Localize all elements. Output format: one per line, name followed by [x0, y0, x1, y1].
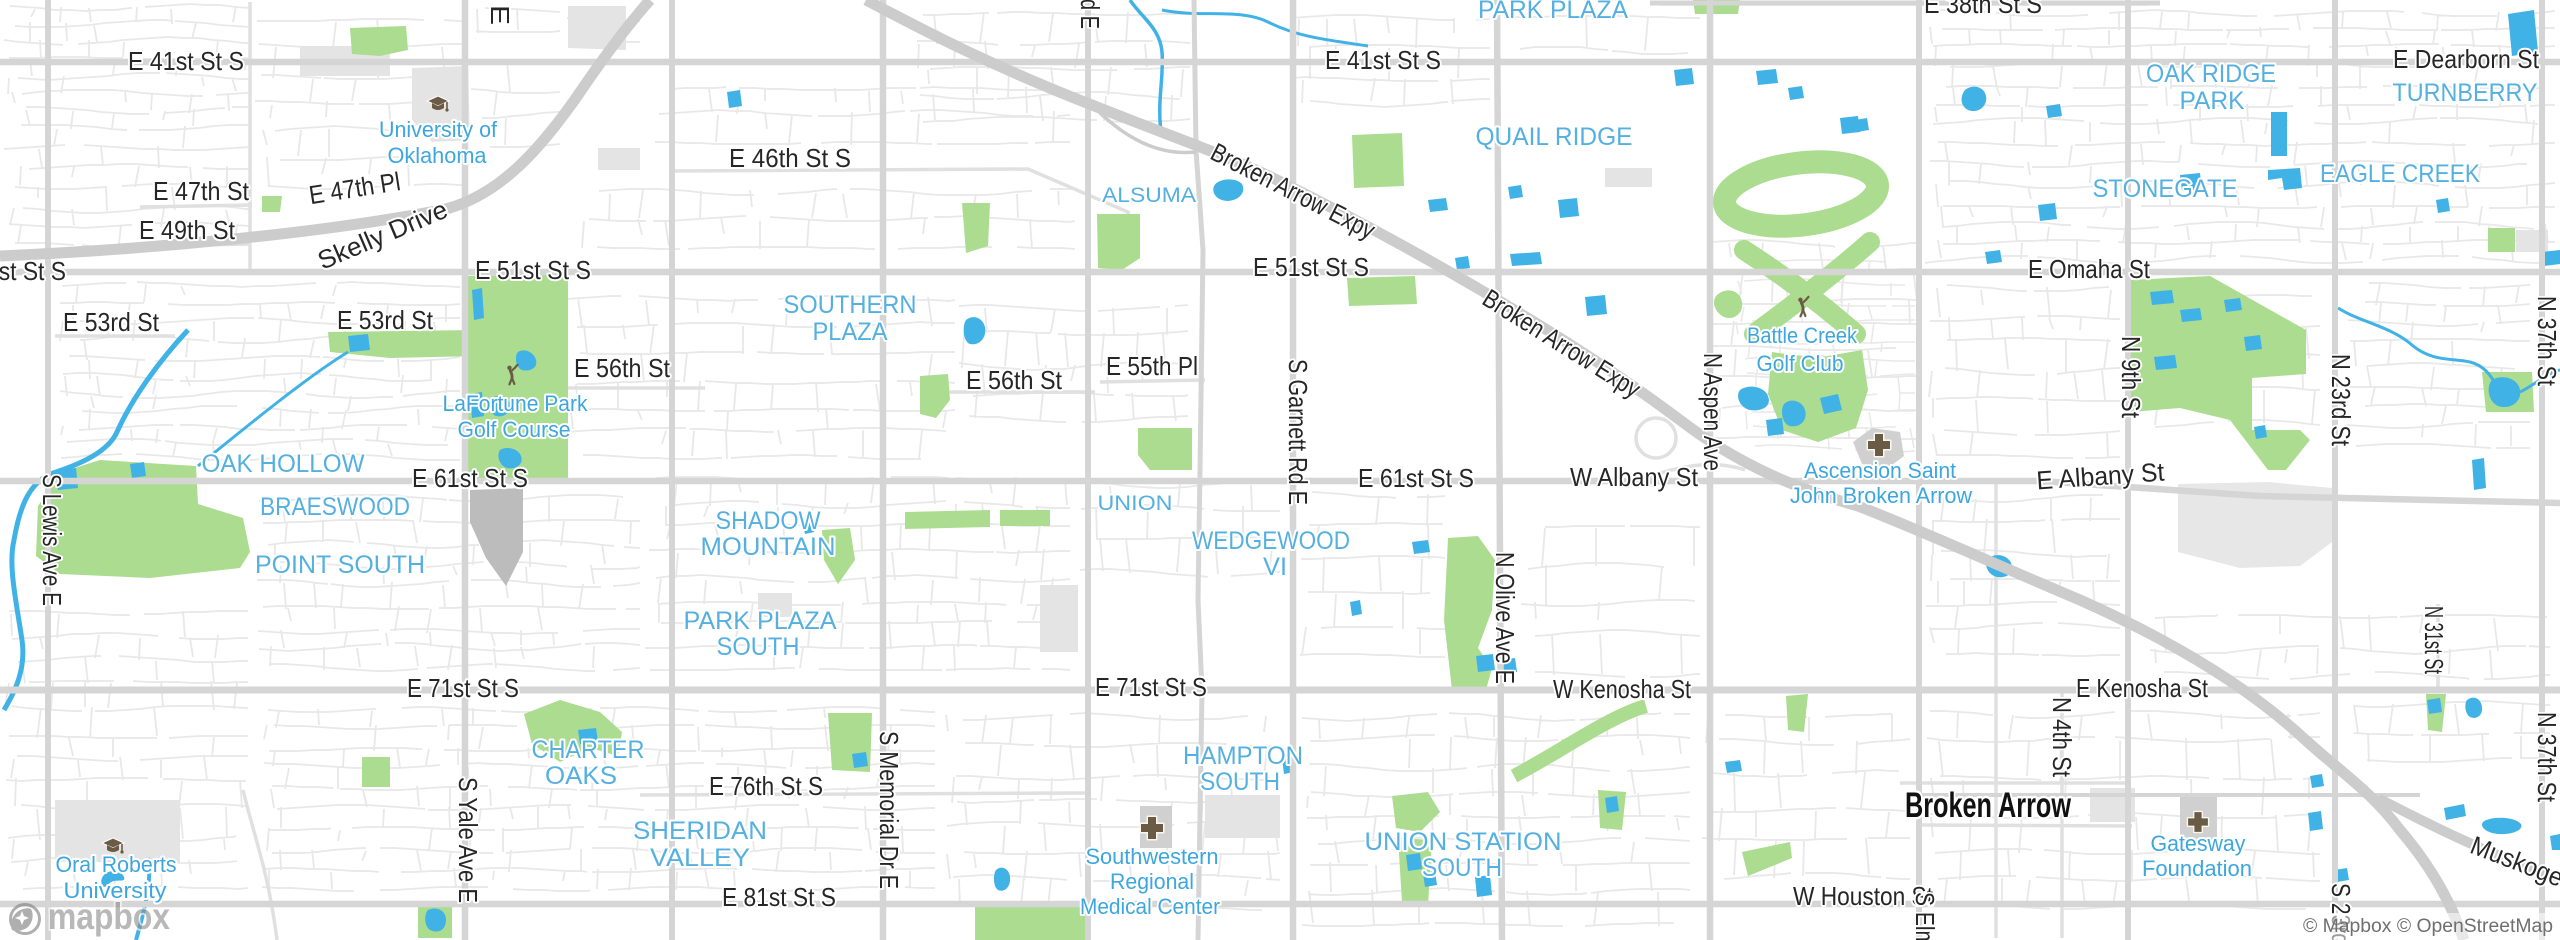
svg-text:E 49th St: E 49th St — [139, 215, 236, 245]
svg-text:University of: University of — [379, 117, 498, 142]
svg-text:Foundation: Foundation — [2142, 856, 2252, 881]
svg-text:SOUTH: SOUTH — [1200, 768, 1280, 796]
svg-text:E 56th St: E 56th St — [574, 353, 671, 383]
svg-text:E 76th St S: E 76th St S — [709, 771, 823, 801]
svg-text:BRAESWOOD: BRAESWOOD — [260, 493, 410, 521]
svg-text:EAGLE CREEK: EAGLE CREEK — [2320, 160, 2480, 188]
svg-text:E 51st St S: E 51st St S — [1253, 252, 1369, 282]
svg-text:UNION STATION: UNION STATION — [1365, 828, 1562, 856]
svg-text:TURNBERRY: TURNBERRY — [2393, 79, 2538, 107]
svg-text:Battle Creek: Battle Creek — [1747, 323, 1858, 348]
svg-text:E 41st St S: E 41st St S — [1325, 45, 1441, 75]
svg-text:MOUNTAIN: MOUNTAIN — [701, 533, 836, 561]
svg-text:E 53rd St: E 53rd St — [63, 307, 160, 337]
svg-text:E 53rd St: E 53rd St — [337, 305, 434, 335]
svg-text:Broken Arrow: Broken Arrow — [1905, 786, 2072, 825]
svg-text:N 37th St: N 37th St — [2532, 712, 2560, 803]
svg-text:UNION: UNION — [1098, 492, 1173, 515]
svg-text:SOUTH: SOUTH — [717, 633, 800, 661]
svg-text:Southwestern: Southwestern — [1086, 844, 1219, 869]
svg-text:S Lewis Ave E: S Lewis Ave E — [37, 474, 67, 606]
svg-text:SHADOW: SHADOW — [716, 507, 821, 535]
svg-text:N 4th St: N 4th St — [2047, 697, 2077, 778]
svg-text:PARK PLAZA: PARK PLAZA — [684, 607, 837, 635]
svg-text:SHERIDAN: SHERIDAN — [633, 817, 767, 845]
svg-text:Oklahoma: Oklahoma — [388, 143, 488, 168]
svg-text:N Olive Ave E: N Olive Ave E — [1490, 552, 1520, 684]
svg-text:LaFortune Park: LaFortune Park — [443, 391, 589, 416]
svg-text:mapbox: mapbox — [48, 896, 170, 937]
svg-text:E: E — [485, 5, 515, 25]
svg-text:E 61st St S: E 61st St S — [412, 463, 528, 493]
svg-text:Golf Club: Golf Club — [1757, 351, 1844, 376]
svg-text:Gatesway: Gatesway — [2151, 831, 2246, 856]
svg-text:E Dearborn St: E Dearborn St — [2393, 44, 2540, 74]
svg-text:PARK: PARK — [2180, 87, 2245, 115]
svg-text:E 71st St S: E 71st St S — [1095, 672, 1207, 702]
svg-text:S Yale Ave E: S Yale Ave E — [453, 777, 483, 903]
svg-text:Medical Center: Medical Center — [1080, 894, 1220, 919]
svg-text:CHARTER: CHARTER — [532, 736, 645, 764]
svg-text:N 37th St: N 37th St — [2532, 296, 2560, 387]
svg-text:S Elm: S Elm — [1910, 892, 1940, 940]
svg-text:Oral Roberts: Oral Roberts — [56, 852, 177, 877]
svg-text:E 41st St S: E 41st St S — [128, 46, 244, 76]
svg-text:PLAZA: PLAZA — [813, 318, 888, 346]
svg-text:W Albany St: W Albany St — [1570, 462, 1699, 492]
svg-text:d E: d E — [1075, 0, 1105, 29]
svg-text:VI: VI — [1263, 553, 1287, 581]
svg-text:© Mapbox © OpenStreetMap: © Mapbox © OpenStreetMap — [2303, 916, 2553, 937]
svg-text:Ascension Saint: Ascension Saint — [1804, 458, 1956, 483]
svg-text:E 56th St: E 56th St — [966, 365, 1063, 395]
svg-text:W Kenosha St: W Kenosha St — [1553, 674, 1692, 704]
svg-text:E 46th St S: E 46th St S — [729, 143, 851, 173]
svg-text:Regional: Regional — [1110, 869, 1194, 894]
svg-text:N 31st St: N 31st St — [2419, 606, 2449, 674]
svg-text:N 23rd St: N 23rd St — [2326, 354, 2356, 447]
svg-text:STONEGATE: STONEGATE — [2093, 175, 2238, 203]
svg-text:E Omaha St: E Omaha St — [2028, 254, 2151, 284]
svg-text:OAK RIDGE: OAK RIDGE — [2146, 60, 2276, 88]
svg-text:OAKS: OAKS — [545, 762, 617, 790]
svg-text:E 81st St S: E 81st St S — [722, 882, 836, 912]
svg-text:WEDGEWOOD: WEDGEWOOD — [1192, 527, 1350, 555]
svg-text:E 55th Pl: E 55th Pl — [1106, 351, 1198, 381]
svg-text:VALLEY: VALLEY — [650, 844, 750, 872]
svg-text:POINT SOUTH: POINT SOUTH — [255, 551, 425, 579]
svg-text:E Kenosha St: E Kenosha St — [2076, 673, 2209, 703]
svg-text:E 47th St: E 47th St — [153, 176, 250, 206]
svg-text:E 38th St S: E 38th St S — [1924, 0, 2042, 19]
svg-text:N Aspen Ave: N Aspen Ave — [1698, 353, 1728, 471]
svg-text:Golf Course: Golf Course — [458, 417, 571, 442]
svg-text:John Broken Arrow: John Broken Arrow — [1790, 483, 1972, 508]
svg-text:S Memorial Dr E: S Memorial Dr E — [874, 731, 904, 889]
svg-text:1st St S: 1st St S — [0, 256, 66, 286]
svg-text:PARK PLAZA: PARK PLAZA — [1478, 0, 1628, 24]
svg-text:E 51st St S: E 51st St S — [475, 255, 591, 285]
svg-text:SOUTHERN: SOUTHERN — [784, 291, 917, 319]
svg-text:HAMPTON: HAMPTON — [1183, 742, 1303, 770]
svg-text:E 61st St S: E 61st St S — [1358, 463, 1474, 493]
svg-text:QUAIL RIDGE: QUAIL RIDGE — [1476, 123, 1633, 151]
svg-text:ALSUMA: ALSUMA — [1102, 184, 1196, 207]
svg-text:SOUTH: SOUTH — [1422, 854, 1502, 882]
svg-text:E 71st St S: E 71st St S — [407, 673, 519, 703]
svg-text:S Garnett Rd E: S Garnett Rd E — [1283, 359, 1313, 505]
svg-text:N 9th St: N 9th St — [2116, 336, 2146, 419]
svg-text:OAK HOLLOW: OAK HOLLOW — [202, 450, 365, 478]
